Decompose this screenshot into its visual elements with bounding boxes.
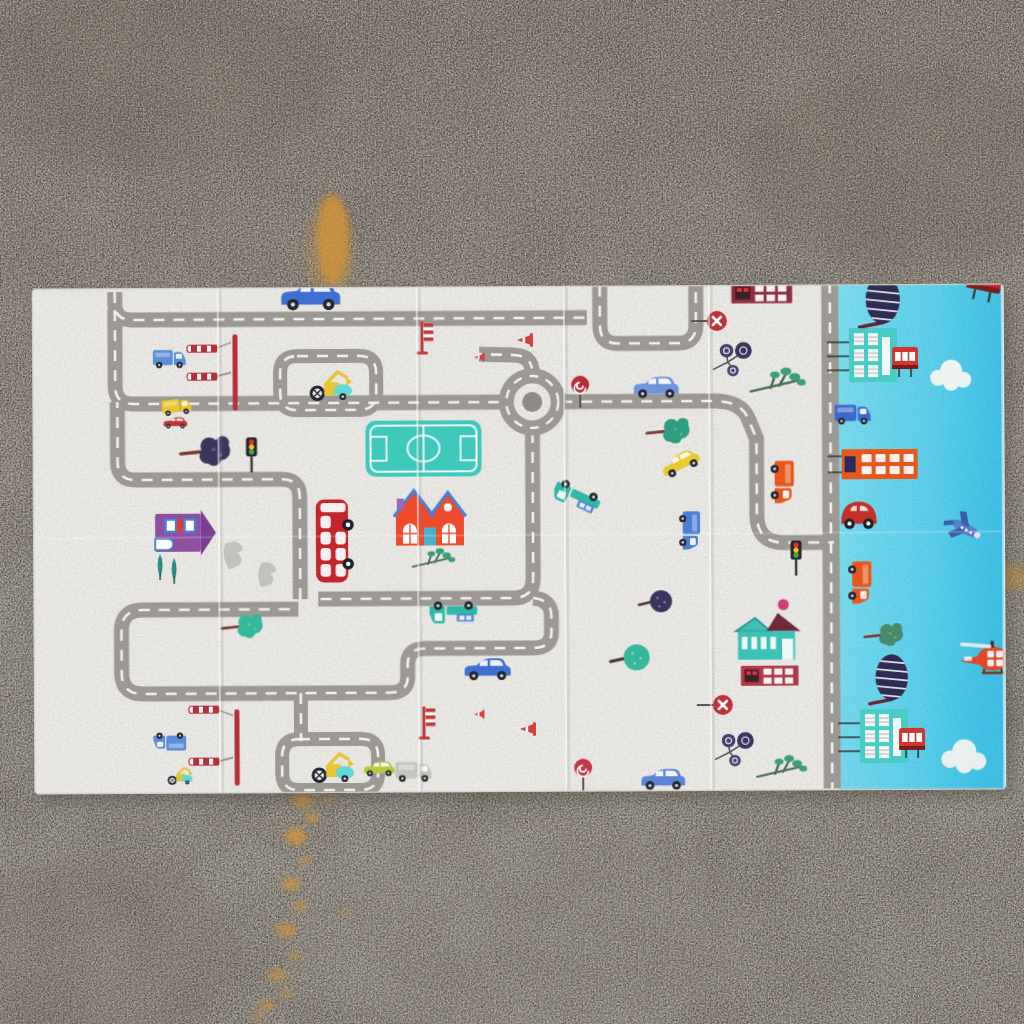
playmat-photo (0, 0, 1024, 1024)
gate-icon (187, 345, 217, 352)
gate-icon (189, 706, 219, 713)
photo-stage (0, 0, 1024, 1024)
soccer-field (365, 420, 481, 477)
paint-stain (253, 1013, 263, 1021)
paint-stain (288, 952, 300, 960)
paint-stain (276, 923, 296, 937)
paint-stain (280, 988, 292, 998)
paint-stain (305, 813, 319, 823)
play-mat (32, 259, 1013, 803)
mast-icon (232, 334, 237, 410)
paint-stain (268, 969, 286, 981)
paint-stain (299, 856, 311, 864)
paint-stain (259, 1001, 275, 1011)
paint-stain (294, 901, 308, 911)
brickbld-icon (741, 666, 799, 686)
paint-stain (285, 828, 307, 844)
mast-icon (234, 709, 239, 785)
paint-stain (282, 878, 300, 890)
pinkdot-icon (778, 599, 789, 610)
paint-stain (343, 910, 351, 916)
gate-icon (189, 758, 219, 765)
gate-icon (187, 373, 217, 380)
roundabout-island (522, 392, 542, 412)
